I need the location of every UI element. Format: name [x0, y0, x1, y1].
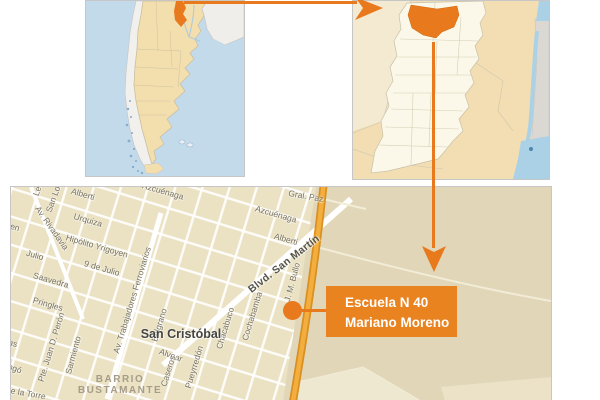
connector-line-horizontal: [184, 1, 357, 4]
province-map-svg: [353, 1, 549, 179]
town-label: San Cristóbal: [141, 327, 222, 341]
argentina-map-svg: [86, 1, 244, 176]
district-label-line1: BARRIO: [96, 374, 144, 385]
santa-fe-province-map: [352, 0, 550, 180]
locator-infographic: Le San Lo Alberti Azcuénaga Gral. Paz Ur…: [0, 0, 600, 400]
callout-line1: Escuela N 40: [345, 293, 457, 313]
school-callout: Escuela N 40 Mariano Moreno: [326, 286, 457, 337]
connector-line-vertical: [432, 42, 435, 248]
callout-leader-line: [297, 309, 327, 312]
callout-line2: Mariano Moreno: [345, 313, 457, 333]
argentina-country-map: [85, 0, 245, 177]
river-dot: [529, 147, 533, 151]
district-label: BARRIO BUSTAMANTE: [78, 374, 162, 396]
district-label-line2: BUSTAMANTE: [78, 385, 162, 396]
san-cristobal-street-map: Le San Lo Alberti Azcuénaga Gral. Paz Ur…: [10, 186, 552, 400]
arrow-right-icon: [355, 0, 385, 21]
arrow-down-icon: [422, 246, 446, 274]
